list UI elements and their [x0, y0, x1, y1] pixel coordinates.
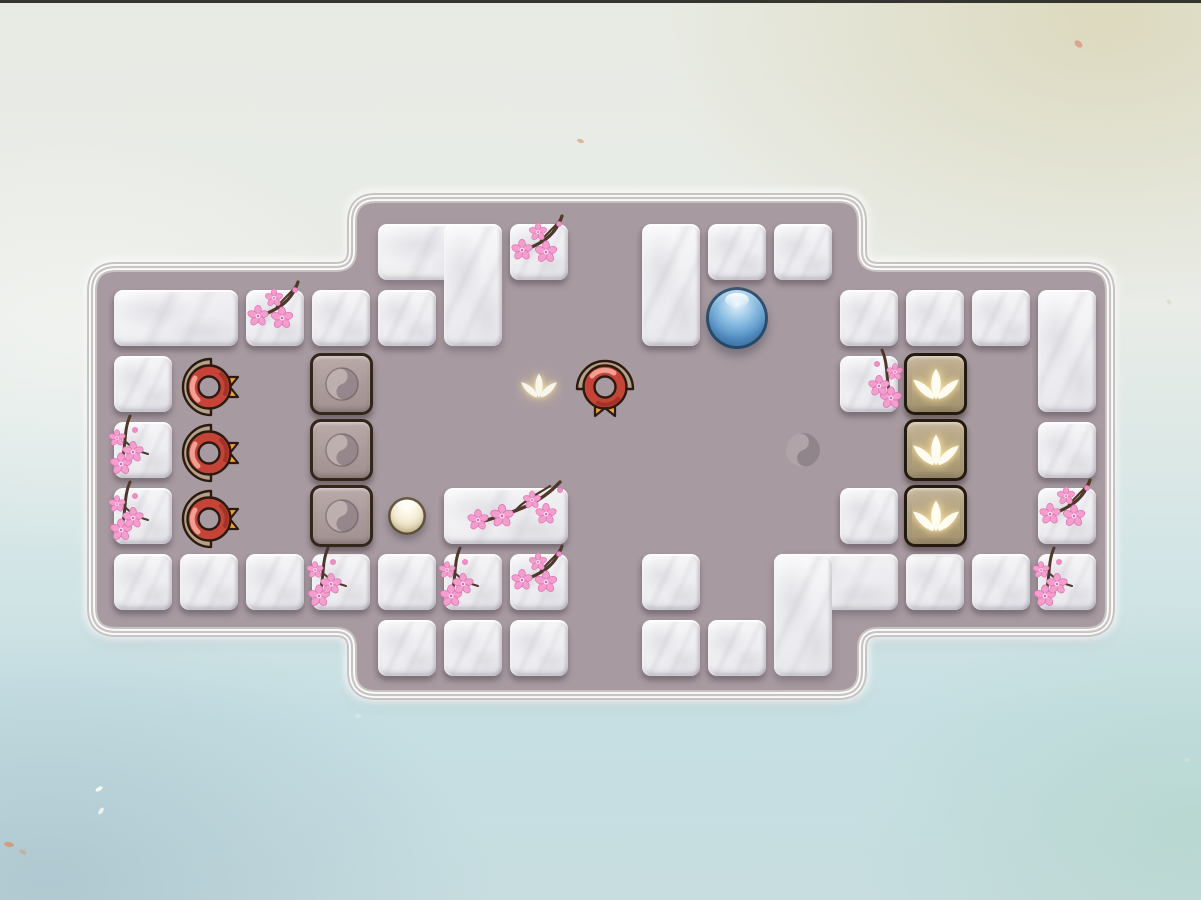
blue-glass-ball[interactable] — [706, 287, 768, 349]
pearl-ball[interactable] — [388, 497, 426, 535]
window-top-edge — [0, 0, 1201, 3]
game-viewport — [0, 0, 1201, 900]
object-layer — [0, 0, 1201, 900]
